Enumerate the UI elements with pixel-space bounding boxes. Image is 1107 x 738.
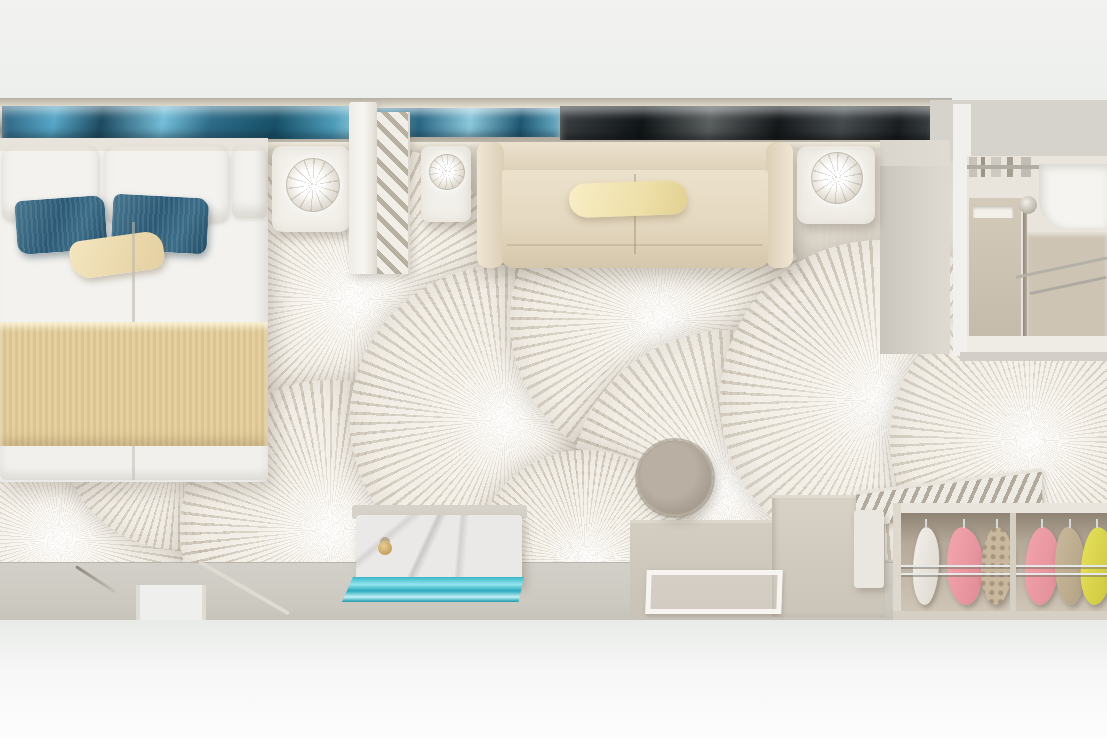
- bottom-margin: [0, 620, 1107, 738]
- closet-wire-rail: [899, 565, 1107, 567]
- top-margin: [0, 0, 1107, 100]
- mini-cabinet: [854, 510, 884, 588]
- table-lamp: [286, 158, 340, 212]
- wardrobe-interior: [899, 513, 1107, 613]
- closet-wire-rail: [899, 573, 1107, 575]
- hanger-hook: [1096, 519, 1098, 528]
- bath-sink-slot: [973, 206, 1013, 218]
- cabin-render: [0, 0, 1107, 738]
- bed: [0, 138, 268, 482]
- gold-knob: [378, 541, 392, 555]
- right-wall: [880, 140, 950, 354]
- right-wall-highlight: [880, 140, 950, 166]
- sofa: [477, 140, 793, 270]
- hanger-hook: [963, 519, 965, 528]
- hanger-hook: [925, 519, 927, 528]
- hanger-hook: [1041, 519, 1043, 528]
- bed-runner-blanket: [0, 322, 268, 446]
- wardrobe: [893, 503, 1107, 622]
- bath-outer-wall: [960, 352, 1107, 361]
- partition-post: [349, 102, 377, 274]
- sofa-throw-pillow: [568, 180, 687, 218]
- bathroom: [967, 156, 1107, 352]
- louvered-partition: [377, 112, 410, 274]
- sofa-armrest: [477, 142, 504, 268]
- wardrobe-divider: [1010, 513, 1016, 613]
- hanger-hook: [996, 519, 998, 528]
- bathtub: [1039, 164, 1107, 228]
- bath-vanity: [969, 198, 1021, 350]
- duvet-seam: [132, 446, 135, 480]
- acrylic-table: [645, 570, 783, 614]
- table-lamp: [429, 154, 465, 190]
- bath-threshold: [967, 336, 1107, 352]
- white-pillow: [232, 147, 266, 217]
- vanity-desk: [352, 505, 527, 603]
- cushion-seam: [507, 244, 763, 246]
- wardrobe-frame: [893, 503, 901, 622]
- duvet-seam: [132, 222, 135, 322]
- round-stool: [637, 440, 713, 516]
- sea-reflection-left: [2, 106, 360, 139]
- sofa-armrest: [766, 142, 793, 268]
- doorway-threshold: [136, 585, 206, 624]
- hanger-hook: [1069, 519, 1071, 528]
- sea-reflection-dark: [560, 106, 935, 140]
- table-lamp: [811, 152, 863, 204]
- shower-head: [1019, 196, 1037, 214]
- turquoise-glass-bench: [342, 577, 524, 602]
